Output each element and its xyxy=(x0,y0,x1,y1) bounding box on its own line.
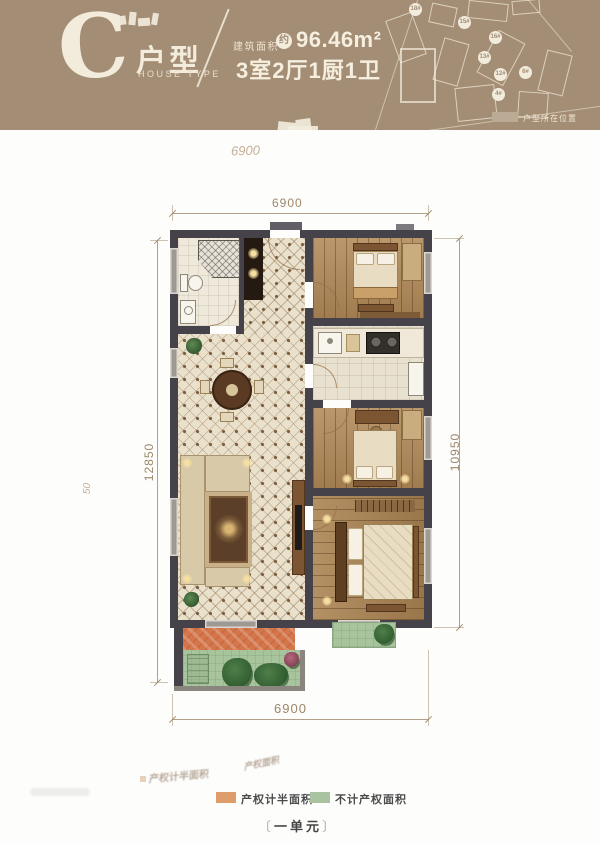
building-badge: 13# xyxy=(478,51,491,64)
planter xyxy=(187,654,209,684)
building-badge: 18# xyxy=(409,3,422,16)
castle-sketch-icon xyxy=(138,18,151,27)
print-smudge xyxy=(30,788,90,796)
siteplan-building xyxy=(428,3,458,28)
lamp-glow xyxy=(182,574,192,584)
balcony-wall xyxy=(174,626,183,688)
dining-chair xyxy=(220,412,234,422)
wall xyxy=(305,238,313,282)
wall xyxy=(236,326,244,334)
lamp-glow xyxy=(242,458,252,468)
siteplan-building xyxy=(511,0,540,15)
cabinet-light xyxy=(248,268,259,279)
siteplan-legend-label: 户型所在位置 xyxy=(523,113,577,124)
approx-circle-icon: 约 xyxy=(276,33,292,49)
building-badge: 12# xyxy=(494,68,507,81)
balcony-rail xyxy=(300,650,305,691)
unit-name: 一单元 xyxy=(274,819,322,834)
lamp-glow xyxy=(322,514,332,524)
basin-icon xyxy=(184,306,193,315)
pillow xyxy=(356,466,373,479)
house-type-label-en: HOUSE TYPE xyxy=(138,69,221,79)
siteplan-building xyxy=(432,37,469,86)
area-label: 建筑面积 xyxy=(233,38,279,53)
desk xyxy=(355,410,399,424)
building-badge: 6# xyxy=(519,66,532,79)
dim-guide xyxy=(150,240,168,241)
wall xyxy=(313,318,424,326)
siteplan-sketch: 18# 15# 16# 13# 12# 6# 4# 户型所在位置 xyxy=(390,0,600,130)
dining-chair xyxy=(200,380,210,394)
siteplan-building xyxy=(467,0,509,22)
rug-motif xyxy=(214,514,244,544)
dim-right-line xyxy=(459,238,460,627)
balcony-door xyxy=(205,620,257,628)
toilet-tank xyxy=(180,274,188,292)
bed-footboard xyxy=(413,526,419,598)
tv-icon xyxy=(295,505,302,550)
window xyxy=(424,528,432,584)
legend-swatch-no-area xyxy=(310,792,330,803)
dim-left-label: 12850 xyxy=(142,443,156,481)
ledge xyxy=(396,224,414,230)
window xyxy=(424,416,432,460)
ghost-dimension-text: 6900 xyxy=(231,142,260,158)
bracket-left: 〔 xyxy=(258,819,274,834)
legend-label-no-area: 不计产权面积 xyxy=(335,791,407,807)
lamp-glow xyxy=(342,474,352,484)
legend-swatch-half-area xyxy=(216,792,236,803)
siteplan-building xyxy=(537,49,572,96)
bed-headboard xyxy=(335,522,347,602)
unit-label: 〔一单元〕 xyxy=(258,816,338,835)
window xyxy=(170,248,178,294)
toilet-icon xyxy=(188,275,203,291)
pillow xyxy=(377,253,395,265)
cutting-board xyxy=(346,334,360,352)
dim-left-line xyxy=(157,240,158,682)
ghost-legend-swatch xyxy=(140,776,146,782)
pillow xyxy=(356,253,374,265)
wall xyxy=(305,496,313,506)
wardrobe xyxy=(402,243,422,281)
dim-bottom-label: 6900 xyxy=(274,701,307,716)
dim-right-label: 10950 xyxy=(448,433,462,471)
siteplan-building xyxy=(400,48,436,103)
building-badge: 15# xyxy=(458,16,471,29)
wall xyxy=(305,308,313,326)
siteplan-overflow-sketch xyxy=(288,126,318,130)
burner-icon xyxy=(386,336,398,348)
legend-label-half-area: 产权计半面积 xyxy=(241,791,313,807)
sofa-main xyxy=(180,455,205,585)
balcony-half-area xyxy=(183,628,295,650)
table-centerpiece xyxy=(226,384,238,396)
wall xyxy=(178,326,210,334)
dim-guide xyxy=(150,682,168,683)
wall xyxy=(305,530,313,620)
wall xyxy=(305,400,323,408)
bed-bottom xyxy=(363,524,413,600)
castle-sketch-icon xyxy=(151,13,159,26)
window xyxy=(424,252,432,294)
lamp-glow xyxy=(242,574,252,584)
pillow xyxy=(348,564,363,596)
area-value: 96.46m² xyxy=(296,27,381,53)
pillow xyxy=(376,466,393,479)
castle-sketch-icon xyxy=(128,12,136,26)
wall xyxy=(351,400,424,408)
balcony-rail xyxy=(174,686,305,691)
faucet-icon xyxy=(327,338,333,344)
cabinet-light xyxy=(248,248,259,259)
fridge xyxy=(408,362,424,396)
pillow xyxy=(348,528,363,560)
castle-sketch-icon xyxy=(115,15,126,25)
ghost-legend-text: 产权面积 xyxy=(244,752,280,773)
dining-chair xyxy=(220,358,234,368)
bed-headboard xyxy=(353,243,398,251)
window xyxy=(170,348,178,378)
lamp-glow xyxy=(322,596,332,606)
dim-bottom-line xyxy=(172,719,428,720)
ghost-side-text: 50 xyxy=(82,483,93,494)
bracket-right: 〕 xyxy=(322,819,338,834)
siteplan-legend-swatch xyxy=(492,112,518,122)
wall xyxy=(170,230,270,238)
entry-step xyxy=(270,222,302,230)
bed-bench xyxy=(358,304,394,312)
bed-headboard xyxy=(353,480,397,487)
house-type-letter: C xyxy=(55,0,131,92)
dim-top-line xyxy=(172,213,428,214)
building-badge: 4# xyxy=(492,88,505,101)
bed-bench xyxy=(366,604,406,612)
dresser xyxy=(402,410,422,440)
rooms-summary: 3室2厅1厨1卫 xyxy=(236,53,381,85)
wall xyxy=(305,488,424,496)
wall xyxy=(305,408,313,488)
wall xyxy=(305,326,313,364)
floorplan-page: C 户型 HOUSE TYPE 建筑面积 约 96.46m² 3室2厅1厨1卫 xyxy=(0,0,600,843)
wardrobe-hangers xyxy=(355,500,415,512)
ghost-legend-text: 产权计半面积 xyxy=(149,765,210,785)
floorplan-drawing xyxy=(170,230,432,692)
lamp-glow xyxy=(182,458,192,468)
burner-icon xyxy=(370,336,382,348)
dining-chair xyxy=(254,380,264,394)
wall xyxy=(300,230,432,238)
header-banner: C 户型 HOUSE TYPE 建筑面积 约 96.46m² 3室2厅1厨1卫 xyxy=(0,0,600,130)
bed-throw xyxy=(353,287,398,299)
building-badge: 16# xyxy=(489,31,502,44)
lamp-glow xyxy=(400,474,410,484)
dresser xyxy=(360,312,420,318)
dim-guide xyxy=(172,694,173,726)
window xyxy=(170,498,178,556)
dim-top-label: 6900 xyxy=(272,196,303,210)
